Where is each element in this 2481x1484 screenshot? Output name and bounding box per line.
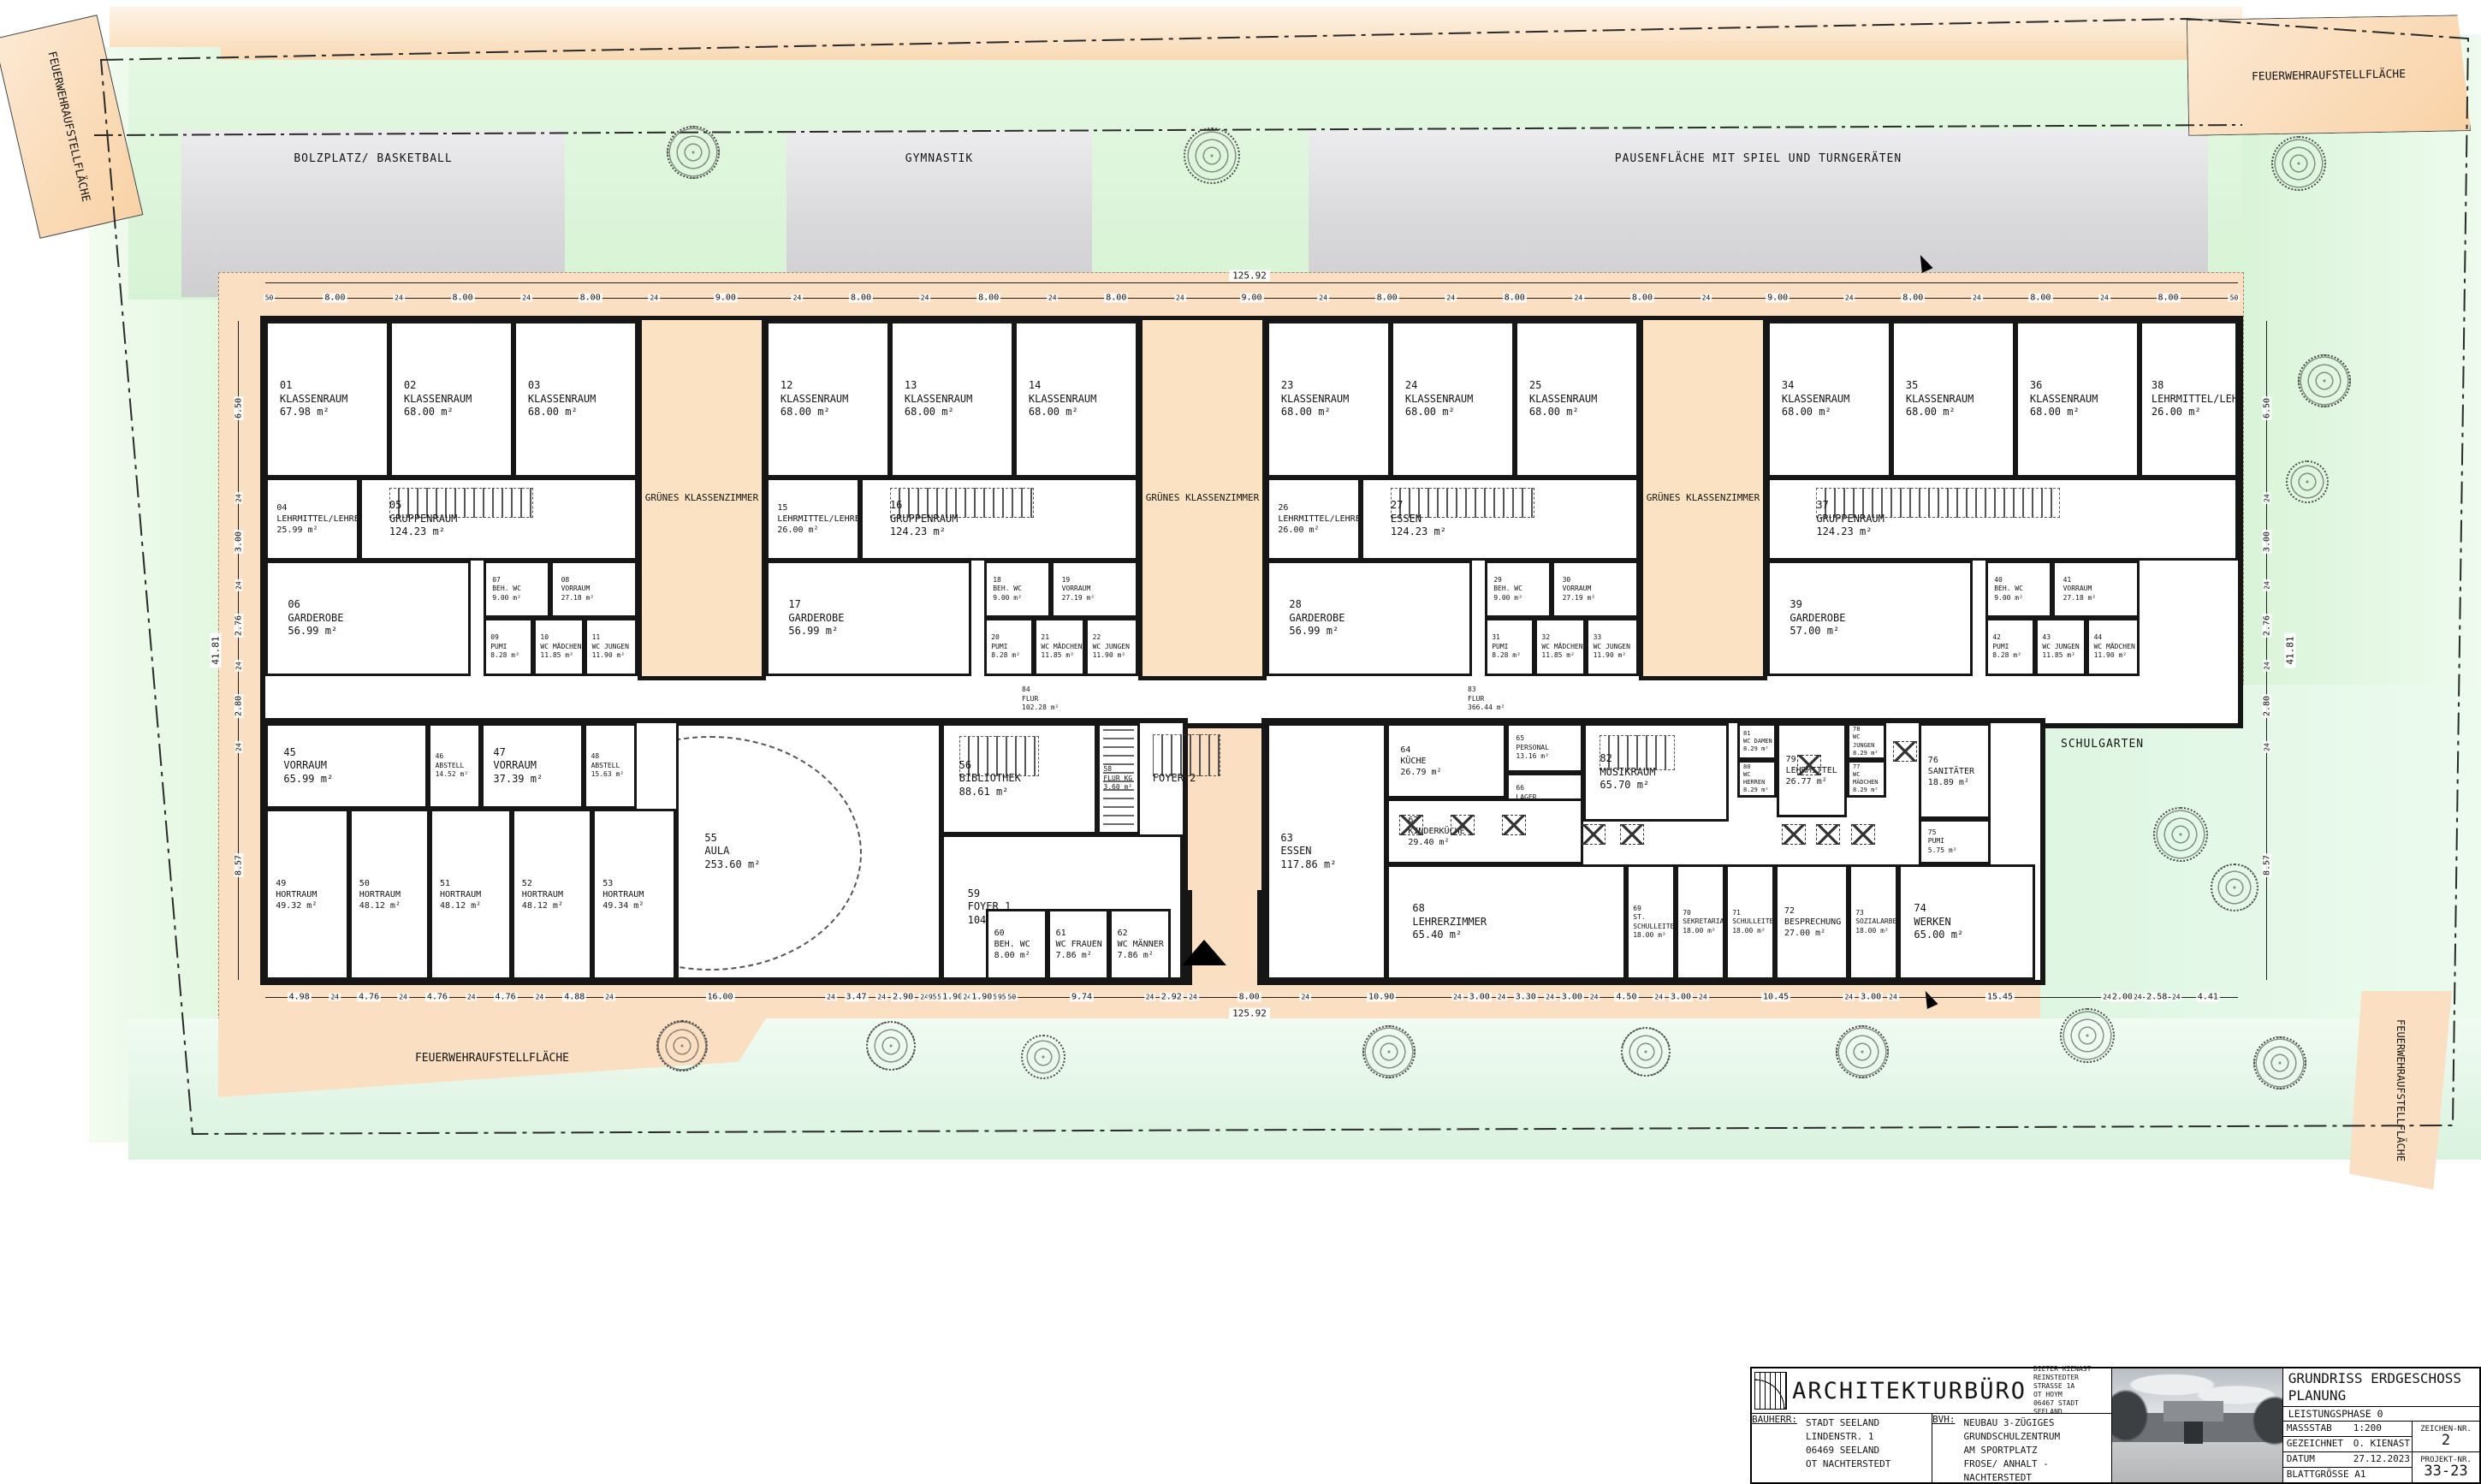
room-39-garderobe: 39 GARDEROBE 57.00 m²	[1767, 561, 1973, 676]
dim-label: 24	[1047, 294, 1059, 302]
dim-label: 24	[1299, 994, 1311, 1001]
dim-label: 24	[1653, 994, 1665, 1001]
room-label: 04 LEHRMITTEL/LEHRER 25.99 m²	[268, 502, 359, 536]
room-15-lehrmittel-lehrer: 15 LEHRMITTEL/LEHRER 26.00 m²	[766, 478, 860, 561]
dim-label: 24	[235, 660, 243, 672]
skylight-icon	[1399, 815, 1423, 835]
firm-address: DIETER KIENAST REINSTEDTER STRASSE 1A OT…	[2033, 1365, 2111, 1416]
room-69-st-schulleiter: 69 ST. SCHULLEITER 18.00 m²	[1626, 864, 1676, 980]
room-label: 16 GRUPPENRAUM 124.23 m²	[863, 499, 958, 539]
skylight-icon	[1816, 824, 1840, 845]
room-21-wc-mädchen: 21 WC MÄDCHEN 11.85 m²	[1034, 618, 1085, 676]
dim-label: 8.00	[1375, 294, 1399, 303]
dim-label: 24	[1187, 994, 1199, 1001]
room-10-wc-mädchen: 10 WC MÄDCHEN 11.85 m²	[533, 618, 585, 676]
room-label: 71 SCHULLEITER 18.00 m²	[1728, 909, 1775, 935]
room-label: 23 KLASSENRAUM 68.00 m²	[1269, 379, 1349, 419]
scale-value: 1:200	[2352, 1422, 2412, 1436]
dim-label: 24	[1700, 294, 1712, 302]
dim-label: 8.00	[1630, 294, 1654, 303]
room-label: 05 GRUPPENRAUM 124.23 m²	[362, 499, 457, 539]
room-label: 08 VORRAUM 27.18 m²	[553, 576, 594, 603]
room-label: 01 KLASSENRAUM 67.98 m²	[268, 379, 347, 419]
dim-label: 8.57	[2263, 853, 2272, 877]
feuerwehr-box-bottomright: FEUERWEHRAUFSTELLFLÄCHE	[2349, 991, 2452, 1190]
courtyard-2: GRÜNES KLASSENZIMMER	[1138, 316, 1267, 680]
room-41-vorraum: 41 VORRAUM 27.18 m²	[2052, 561, 2140, 618]
room-label: 17 GARDEROBE 56.99 m²	[769, 598, 844, 638]
room-36-klassenraum: 36 KLASSENRAUM 68.00 m²	[2015, 321, 2140, 478]
room-23-klassenraum: 23 KLASSENRAUM 68.00 m²	[1267, 321, 1391, 478]
dim-label: 24	[2132, 994, 2144, 1001]
dim-label: 8.00	[579, 294, 602, 303]
room-label: 07 BEH. WC 9.00 m²	[486, 576, 521, 603]
dim-label: 3.47	[845, 993, 869, 1002]
room-label: 37 GRUPPENRAUM 124.23 m²	[1770, 499, 1884, 539]
room-label: 75 PUMI 5.75 m²	[1921, 828, 1957, 855]
dim-label: 4.50	[1614, 993, 1638, 1002]
entrance-walkway	[1188, 890, 1261, 985]
room-label: 06 GARDEROBE 56.99 m²	[268, 598, 343, 638]
room-72-besprechung: 72 BESPRECHUNG 27.00 m²	[1775, 864, 1849, 980]
dim-label: 24	[2264, 579, 2271, 591]
dim-label: 24	[1496, 994, 1508, 1001]
room-label: 45 VORRAUM 65.99 m²	[268, 746, 333, 787]
room-label: 74 WERKEN 65.00 m²	[1901, 902, 1963, 942]
room-label: 62 WC MÄNNER 7.86 m²	[1112, 928, 1164, 961]
tree-icon	[866, 1021, 916, 1071]
courtyard-label: GRÜNES KLASSENZIMMER	[1647, 492, 1760, 504]
drawing-title: GRUNDRISS ERDGESCHOSS	[2288, 1370, 2474, 1387]
room-34-klassenraum: 34 KLASSENRAUM 68.00 m²	[1767, 321, 1891, 478]
room-77-wc-mädchen: 77 WC MÄDCHEN 8.29 m²	[1847, 760, 1886, 798]
dim-label: 24	[235, 579, 243, 591]
dim-label: 3.00	[1560, 993, 1584, 1002]
dim-label: 24	[397, 994, 409, 1001]
overall-dim-left: 41.81	[211, 632, 222, 668]
room-label: 32 WC MÄDCHEN 11.85 m²	[1537, 633, 1583, 660]
room-08-vorraum: 08 VORRAUM 27.18 m²	[550, 561, 638, 618]
room-label: 19 VORRAUM 27.19 m²	[1054, 576, 1095, 603]
dim-label: 24	[2098, 294, 2110, 302]
dim-label: 9.74	[1070, 993, 1094, 1002]
room-label: 60 BEH. WC 8.00 m²	[988, 928, 1030, 961]
dim-label: 24	[235, 741, 243, 753]
room-label: 18 BEH. WC 9.00 m²	[987, 576, 1022, 603]
room-71-schulleiter: 71 SCHULLEITER 18.00 m²	[1725, 864, 1775, 980]
room-label: 13 KLASSENRAUM 68.00 m²	[893, 379, 972, 419]
bauherr-label: BAUHERR:	[1752, 1414, 1797, 1484]
room-44-wc-mädchen: 44 WC MÄDCHEN 11.90 m²	[2086, 618, 2140, 676]
tree-icon	[667, 126, 720, 179]
dim-label: 9.00	[1239, 294, 1263, 303]
room-label: 81 WC DAMEN 8.29 m²	[1740, 730, 1772, 753]
architect-logo-icon	[1754, 1372, 1787, 1410]
sheet-size-label: BLATTGRÖSSE A1	[2283, 1468, 2370, 1482]
dim-label: 4.41	[2196, 993, 2220, 1002]
dim-label: 8.00	[1901, 294, 1925, 303]
room-01-klassenraum: 01 KLASSENRAUM 67.98 m²	[265, 321, 389, 478]
date-label: DATUM	[2283, 1452, 2352, 1467]
drawing-subtitle: PLANUNG	[2288, 1387, 2474, 1404]
room-label: 52 HORTRAUM 48.12 m²	[514, 878, 563, 911]
dim-label: 3.30	[1514, 993, 1538, 1002]
room-05-gruppenraum: 05 GRUPPENRAUM 124.23 m²	[359, 478, 638, 561]
dim-label: 24	[825, 994, 837, 1001]
room-11-wc-jungen: 11 WC JUNGEN 11.90 m²	[585, 618, 638, 676]
room-label: 65 PERSONAL 13.16 m²	[1509, 734, 1549, 761]
dim-label: 24	[520, 294, 532, 302]
room-13-klassenraum: 13 KLASSENRAUM 68.00 m²	[890, 321, 1014, 478]
tree-icon	[2253, 1036, 2306, 1089]
dim-label: 24	[1887, 994, 1899, 1001]
room-61-wc-frauen: 61 WC FRAUEN 7.86 m²	[1048, 909, 1109, 980]
dimension-overall-top-line	[265, 282, 2238, 283]
room-38-lehrmittel-lehrer: 38 LEHRMITTEL/LEHRER 26.00 m²	[2140, 321, 2238, 478]
tree-icon	[1621, 1027, 1671, 1077]
dim-label: 8.00	[451, 294, 475, 303]
tree-icon	[2298, 354, 2351, 407]
tree-icon	[2286, 460, 2329, 503]
tree-icon	[2271, 136, 2326, 191]
room-60-beh-wc: 60 BEH. WC 8.00 m²	[986, 909, 1048, 980]
room-22-wc-jungen: 22 WC JUNGEN 11.90 m²	[1085, 618, 1138, 676]
room-label: 69 ST. SCHULLEITER 18.00 m²	[1629, 905, 1676, 941]
room-label: 40 BEH. WC 9.00 m²	[1988, 576, 2023, 603]
dim-label: 24	[534, 994, 546, 1001]
room-label: 21 WC MÄDCHEN 11.85 m²	[1036, 633, 1083, 660]
scale-label: MASSSTAB	[2283, 1422, 2352, 1436]
room-37-gruppenraum: 37 GRUPPENRAUM 124.23 m²	[1767, 478, 2238, 561]
room-81-wc-damen: 81 WC DAMEN 8.29 m²	[1737, 723, 1777, 760]
skylight-icon	[1620, 824, 1644, 845]
dim-label: 3.00	[1669, 993, 1693, 1002]
room-label: 76 SANITÄTER 18.89 m²	[1921, 755, 1974, 788]
dim-label: 24	[1697, 994, 1709, 1001]
dim-label: 4.76	[357, 993, 381, 1002]
dim-label: 2.58	[2145, 993, 2169, 1002]
room-label: 35 KLASSENRAUM 68.00 m²	[1894, 379, 1974, 419]
room-62-wc-männer: 62 WC MÄNNER 7.86 m²	[1109, 909, 1171, 980]
dim-label: 24	[1971, 294, 1983, 302]
room-label: 36 KLASSENRAUM 68.00 m²	[2018, 379, 2098, 419]
room-33-wc-jungen: 33 WC JUNGEN 11.90 m²	[1586, 618, 1639, 676]
room-51-hortraum: 51 HORTRAUM 48.12 m²	[430, 809, 512, 980]
bauherr-value: STADT SEELAND LINDENSTR. 1 06469 SEELAND…	[1801, 1414, 1895, 1484]
dim-label: 24	[792, 294, 804, 302]
room-foyer-2: FOYER 2	[1140, 723, 1267, 834]
dim-label: 4.76	[494, 993, 518, 1002]
phase-label: LEISTUNGSPHASE 0	[2283, 1407, 2479, 1422]
dim-label: 8.00	[1238, 993, 1261, 1002]
dim-label: 50	[1006, 994, 1018, 1001]
room-82-musikraum: 82 MUSIKRAUM 65.70 m²	[1583, 723, 1729, 822]
dim-label: 10.45	[1761, 993, 1790, 1002]
feuerwehr-label: FEUERWEHRAUFSTELLFLÄCHE	[2395, 1019, 2407, 1161]
dim-label: 8.00	[1503, 294, 1527, 303]
room-label: 34 KLASSENRAUM 68.00 m²	[1770, 379, 1849, 419]
room-19-vorraum: 19 VORRAUM 27.19 m²	[1051, 561, 1138, 618]
dim-label: 2.92	[1160, 993, 1184, 1002]
dim-label: 2.90	[891, 993, 915, 1002]
room-52-hortraum: 52 HORTRAUM 48.12 m²	[512, 809, 592, 980]
dim-label: 24	[2264, 741, 2271, 753]
room-64-küche: 64 KÜCHE 26.79 m²	[1386, 723, 1506, 798]
skylight-icon	[1451, 815, 1475, 835]
room-40-beh-wc: 40 BEH. WC 9.00 m²	[1985, 561, 2052, 618]
dim-label: 8.00	[849, 294, 873, 303]
skylight-icon	[1582, 824, 1606, 845]
room-label: 51 HORTRAUM 48.12 m²	[432, 878, 481, 911]
title-block-data-column: GRUNDRISS ERDGESCHOSS PLANUNG LEISTUNGSP…	[2283, 1368, 2479, 1482]
overall-dim-right: 41.81	[2285, 632, 2296, 668]
dim-label: 24	[1174, 294, 1186, 302]
feuerwehr-box-topright: FEUERWEHRAUFSTELLFLÄCHE	[2187, 15, 2471, 136]
room-26-lehrmittel-lehrer: 26 LEHRMITTEL/LEHRER 26.00 m²	[1267, 478, 1361, 561]
room-09-pumi: 09 PUMI 8.28 m²	[484, 618, 533, 676]
dim-label: 3.00	[2263, 530, 2272, 554]
tree-icon	[2211, 864, 2258, 911]
dim-label: 24	[2264, 660, 2271, 672]
room-06-garderobe: 06 GARDEROBE 56.99 m²	[265, 561, 471, 676]
courtyard-1: GRÜNES KLASSENZIMMER	[638, 316, 766, 680]
room-56-bibliothek: 56 BIBLIOTHEK 88.61 m²	[941, 723, 1097, 834]
room-45-vorraum: 45 VORRAUM 65.99 m²	[265, 723, 428, 809]
dim-label: 24	[235, 492, 243, 504]
dim-label: 9.00	[1766, 294, 1790, 303]
skylight-icon	[1851, 824, 1875, 845]
schulgarten-label: SCHULGARTEN	[2061, 738, 2144, 751]
bvh-value: NEUBAU 3-ZÜGIGES GRUNDSCHULZENTRUM AM SP…	[1960, 1414, 2112, 1484]
room-50-hortraum: 50 HORTRAUM 48.12 m²	[349, 809, 430, 980]
room-label: 41 VORRAUM 27.18 m²	[2055, 576, 2096, 603]
dimension-chain-left: 6.50243.00242.76242.80248.57	[238, 321, 239, 980]
room-75-pumi: 75 PUMI 5.75 m²	[1919, 819, 1991, 864]
room-16-gruppenraum: 16 GRUPPENRAUM 124.23 m²	[860, 478, 1138, 561]
dim-label: 24	[1843, 994, 1855, 1001]
room-label: 43 WC JUNGEN 11.85 m²	[2038, 633, 2080, 660]
room-label: 83 FLUR 366.44 m²	[1455, 686, 1505, 712]
room-label: 55 AULA 253.60 m²	[679, 832, 760, 872]
room-label: FOYER 2	[1140, 772, 1196, 786]
dim-label: 3.00	[1859, 993, 1883, 1002]
room-31-pumi: 31 PUMI 8.28 m²	[1485, 618, 1534, 676]
room-label: 63 ESSEN 117.86 m²	[1269, 832, 1336, 872]
dim-label: 24	[875, 994, 887, 1001]
dim-label: 24	[1588, 994, 1600, 1001]
date-value: 27.12.2023	[2352, 1452, 2412, 1467]
courtyard-3: GRÜNES KLASSENZIMMER	[1639, 316, 1767, 680]
room-07-beh-wc: 07 BEH. WC 9.00 m²	[484, 561, 550, 618]
dim-label: 8.00	[976, 294, 1000, 303]
room-30-vorraum: 30 VORRAUM 27.19 m²	[1552, 561, 1639, 618]
skylight-icon	[1782, 824, 1806, 845]
dim-label: 2.80	[234, 694, 244, 718]
tree-icon	[1021, 1035, 1065, 1079]
dimension-chain-right: 6.50243.00242.76242.80248.57	[2266, 321, 2267, 980]
courtyard-label: GRÜNES KLASSENZIMMER	[1146, 492, 1259, 504]
room-label: 70 SEKRETARIAT 18.00 m²	[1678, 909, 1725, 935]
room-label: 31 PUMI 8.28 m²	[1487, 633, 1521, 660]
drawn-value: O. KIENAST	[2352, 1437, 2412, 1451]
room-24-klassenraum: 24 KLASSENRAUM 68.00 m²	[1391, 321, 1515, 478]
room-27-essen: 27 ESSEN 124.23 m²	[1361, 478, 1639, 561]
room-48-abstell: 48 ABSTELL 15.63 m²	[584, 723, 637, 809]
tree-icon	[656, 1020, 708, 1071]
pausenflaeche-label: PAUSENFLÄCHE MIT SPIEL UND TURNGERÄTEN	[1309, 152, 2208, 165]
dim-label: 24	[2264, 492, 2271, 504]
room-label: 53 HORTRAUM 49.34 m²	[595, 878, 644, 911]
room-label: 02 KLASSENRAUM 68.00 m²	[392, 379, 472, 419]
dim-label: 2.76	[234, 614, 244, 638]
dimension-chain-bottom: 4.98244.76244.76244.76244.882416.00243.4…	[265, 997, 2238, 998]
room-label: 30 VORRAUM 27.19 m²	[1554, 576, 1595, 603]
courtyard-label: GRÜNES KLASSENZIMMER	[645, 492, 758, 504]
room-label: 26 LEHRMITTEL/LEHRER 26.00 m²	[1269, 502, 1361, 536]
floor-plan-sheet: BOLZPLATZ/ BASKETBALL GYMNASTIK PAUSENFL…	[0, 0, 2481, 1484]
overall-dim-top: 125.92	[1229, 270, 1270, 282]
room-label: 38 LEHRMITTEL/LEHRER 26.00 m²	[2142, 379, 2238, 419]
room-18-beh-wc: 18 BEH. WC 9.00 m²	[984, 561, 1051, 618]
dim-label: 24	[329, 994, 341, 1001]
room-17-garderobe: 17 GARDEROBE 56.99 m²	[766, 561, 971, 676]
room-label: 44 WC MÄDCHEN 11.90 m²	[2089, 633, 2135, 660]
dim-label: 3.00	[234, 530, 244, 554]
room-76-sanitäter: 76 SANITÄTER 18.89 m²	[1919, 723, 1991, 819]
skylight-icon	[1502, 815, 1526, 835]
room-25-klassenraum: 25 KLASSENRAUM 68.00 m²	[1515, 321, 1639, 478]
room-label: 12 KLASSENRAUM 68.00 m²	[769, 379, 848, 419]
tree-icon	[1184, 128, 1240, 184]
room-label: 82 MUSIKRAUM 65.70 m²	[1586, 752, 1655, 792]
dim-label: 24	[919, 294, 931, 302]
tree-icon	[2153, 807, 2208, 862]
dim-label: 6.50	[234, 396, 244, 420]
room-label: 78 WC JUNGEN 8.29 m²	[1849, 726, 1884, 757]
room-label: 10 WC MÄDCHEN 11.85 m²	[536, 633, 582, 660]
room-label: 77 WC MÄDCHEN 8.29 m²	[1849, 763, 1884, 794]
room-label: 29 BEH. WC 9.00 m²	[1487, 576, 1522, 603]
dim-label: 24	[603, 994, 615, 1001]
room-53-hortraum: 53 HORTRAUM 49.34 m²	[592, 809, 676, 980]
dim-label: 8.00	[323, 294, 347, 303]
room-label: 46 ABSTELL 14.52 m²	[430, 752, 468, 779]
room-label: 80 WC HERREN 8.29 m²	[1740, 763, 1774, 794]
title-block: ARCHITEKTURBÜRO DIETER KIENAST REINSTEDT…	[1750, 1367, 2481, 1484]
room-label: 58 FLUR KG 3.60 m²	[1100, 765, 1132, 792]
room-42-pumi: 42 PUMI 8.28 m²	[1985, 618, 2035, 676]
room-label: 09 PUMI 8.28 m²	[486, 633, 519, 660]
dim-label: 24	[648, 294, 660, 302]
skylight-icon	[1797, 755, 1821, 775]
room-label: 56 BIBLIOTHEK 88.61 m²	[944, 759, 1021, 799]
room-04-lehrmittel-lehrer: 04 LEHRMITTEL/LEHRER 25.99 m²	[265, 478, 359, 561]
room-label: 11 WC JUNGEN 11.90 m²	[587, 633, 629, 660]
entrance-arrow	[1182, 940, 1226, 965]
room-80-wc-herren: 80 WC HERREN 8.29 m²	[1737, 760, 1777, 798]
dim-label: 9.00	[714, 294, 738, 303]
room-83-flur: 83 FLUR 366.44 m²	[1455, 675, 1583, 723]
room-35-klassenraum: 35 KLASSENRAUM 68.00 m²	[1891, 321, 2015, 478]
dim-label: 50	[264, 294, 276, 302]
skylight-icon	[1893, 741, 1917, 762]
room-label: 28 GARDEROBE 56.99 m²	[1269, 598, 1344, 638]
overall-dim-bottom: 125.92	[1229, 1008, 1270, 1019]
firm-name: ARCHITEKTURBÜRO	[1792, 1378, 2027, 1404]
dimension-chain-top: 508.00248.00248.00249.00248.00248.00248.…	[265, 298, 2238, 299]
room-label: 50 HORTRAUM 48.12 m²	[352, 878, 401, 911]
room-label: 61 WC FRAUEN 7.86 m²	[1050, 928, 1102, 961]
dim-label: 24	[1317, 294, 1329, 302]
room-03-klassenraum: 03 KLASSENRAUM 68.00 m²	[513, 321, 638, 478]
dim-label: 24	[1843, 294, 1855, 302]
room-label: 22 WC JUNGEN 11.90 m²	[1088, 633, 1130, 660]
room-29-beh-wc: 29 BEH. WC 9.00 m²	[1485, 561, 1552, 618]
projekt-value: 33-23	[2413, 1464, 2479, 1479]
dim-label: 2.80	[2263, 694, 2272, 718]
room-label: 33 WC JUNGEN 11.90 m²	[1588, 633, 1630, 660]
building-rendering-image	[2112, 1368, 2283, 1482]
gymnastik-label: GYMNASTIK	[786, 152, 1092, 165]
room-label: 15 LEHRMITTEL/LEHRER 26.00 m²	[769, 502, 860, 536]
room-label: 25 KLASSENRAUM 68.00 m²	[1517, 379, 1597, 419]
dim-label: 24	[393, 294, 405, 302]
dim-label: 50	[2229, 294, 2241, 302]
feuerwehr-label: FEUERWEHRAUFSTELLFLÄCHE	[2252, 68, 2406, 83]
room-label: 47 VORRAUM 37.39 m²	[484, 746, 543, 787]
furniture-symbol	[1153, 734, 1220, 776]
room-58-flur-kg: 58 FLUR KG 3.60 m²	[1097, 723, 1140, 834]
dim-label: 24	[1573, 294, 1585, 302]
room-84-flur: 84 FLUR 102.28 m²	[1010, 675, 1130, 723]
dim-label: 8.00	[2157, 294, 2181, 303]
dim-label: 24	[1445, 294, 1457, 302]
room-63-essen: 63 ESSEN 117.86 m²	[1267, 723, 1386, 980]
room-49-hortraum: 49 HORTRAUM 49.32 m²	[265, 809, 349, 980]
room-label: 24 KLASSENRAUM 68.00 m²	[1393, 379, 1473, 419]
dim-label: 24	[1544, 994, 1556, 1001]
room-47-vorraum: 47 VORRAUM 37.39 m²	[481, 723, 584, 809]
room-46-abstell: 46 ABSTELL 14.52 m²	[428, 723, 481, 809]
bvh-label: BVH:	[1932, 1414, 1956, 1484]
dim-label: 10.90	[1367, 993, 1396, 1002]
room-20-pumi: 20 PUMI 8.28 m²	[984, 618, 1034, 676]
dim-label: 3.00	[1468, 993, 1492, 1002]
room-label: 03 KLASSENRAUM 68.00 m²	[516, 379, 596, 419]
dim-label: 6.50	[2263, 396, 2272, 420]
dim-label: 4.98	[288, 993, 312, 1002]
tree-icon	[2060, 1008, 2115, 1063]
room-70-sekretariat: 70 SEKRETARIAT 18.00 m²	[1676, 864, 1725, 980]
room-02-klassenraum: 02 KLASSENRAUM 68.00 m²	[389, 321, 513, 478]
dim-label: 24	[1451, 994, 1463, 1001]
room-label: 20 PUMI 8.28 m²	[987, 633, 1020, 660]
room-label: 84 FLUR 102.28 m²	[1010, 686, 1059, 712]
dim-label: 2.00	[2110, 993, 2134, 1002]
dim-label: 16.00	[705, 993, 734, 1002]
room-28-garderobe: 28 GARDEROBE 56.99 m²	[1267, 561, 1472, 676]
room-68-lehrerzimmer: 68 LEHRERZIMMER 65.40 m²	[1386, 864, 1626, 980]
drawn-label: GEZEICHNET	[2283, 1437, 2352, 1451]
dim-label: 2.76	[2263, 614, 2272, 638]
dim-label: 24	[466, 994, 478, 1001]
room-43-wc-jungen: 43 WC JUNGEN 11.85 m²	[2035, 618, 2086, 676]
room-label: 14 KLASSENRAUM 68.00 m²	[1017, 379, 1096, 419]
room-73-sozialarbeiter: 73 SOZIALARBEITER 18.00 m²	[1849, 864, 1898, 980]
room-label: 48 ABSTELL 15.63 m²	[586, 752, 624, 779]
room-55-aula: 55 AULA 253.60 m²	[676, 723, 941, 980]
room-32-wc-mädchen: 32 WC MÄDCHEN 11.85 m²	[1534, 618, 1586, 676]
